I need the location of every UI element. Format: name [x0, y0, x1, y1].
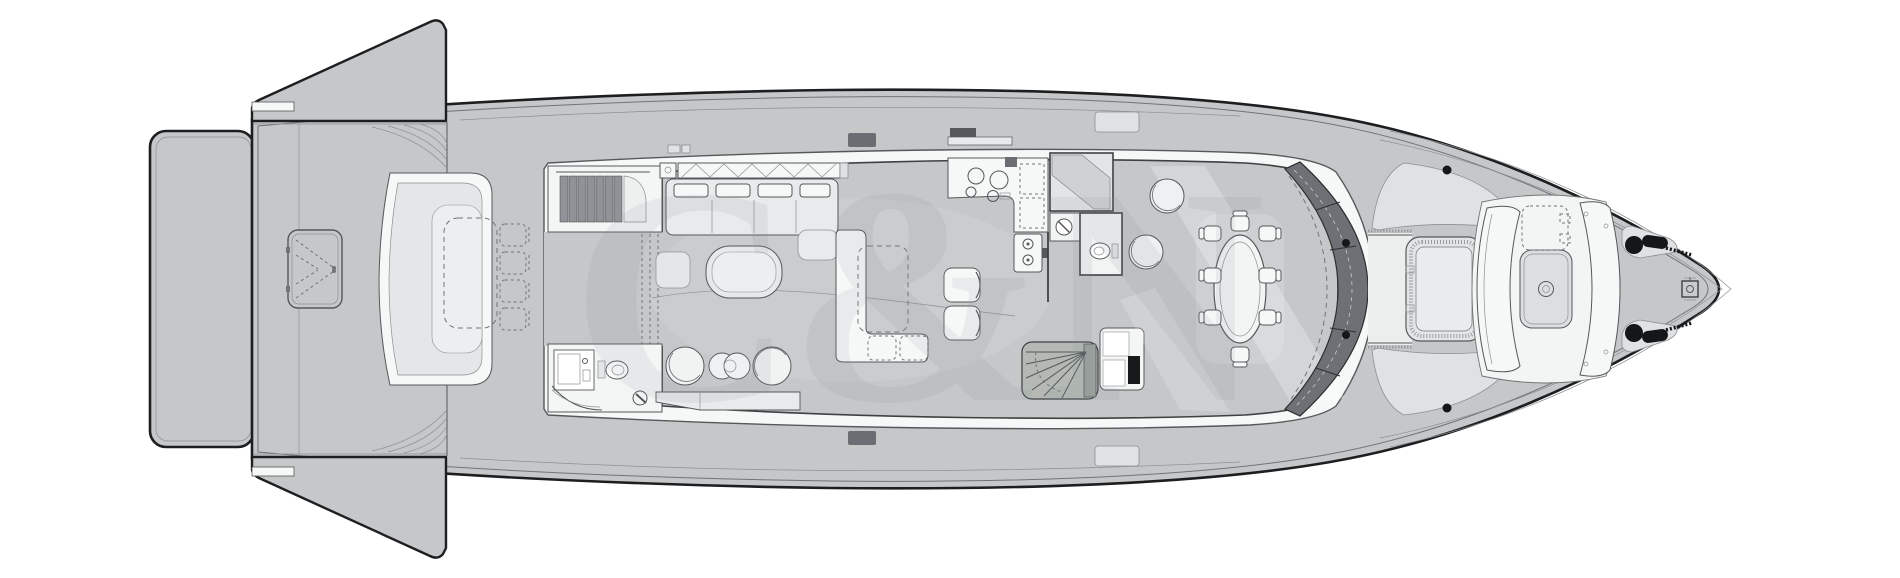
- wiper-motor-port: [1342, 239, 1350, 247]
- anchor-deck-pipe: [1682, 277, 1698, 300]
- stern-wing-starboard: [252, 457, 446, 558]
- swim-platform: [150, 131, 254, 447]
- deck-fitting-dot: [1443, 166, 1452, 175]
- yacht-main-deck-plan: C&N: [0, 0, 1900, 578]
- engine-hatch: [286, 230, 342, 308]
- stern-wing-port: [252, 20, 446, 121]
- bow-table: [1520, 250, 1572, 328]
- aft-lounge-sofa: [379, 173, 492, 385]
- watermark: C&N: [571, 125, 1264, 468]
- deck-fitting-dot: [1443, 404, 1452, 413]
- anchor-windlass-port: [1622, 226, 1692, 258]
- wiper-motor-starboard: [1342, 331, 1350, 339]
- skylight-hatch: [1406, 237, 1482, 341]
- anchor-windlass-starboard: [1622, 320, 1692, 352]
- yacht-deck-plan-canvas: C&N: [0, 0, 1900, 578]
